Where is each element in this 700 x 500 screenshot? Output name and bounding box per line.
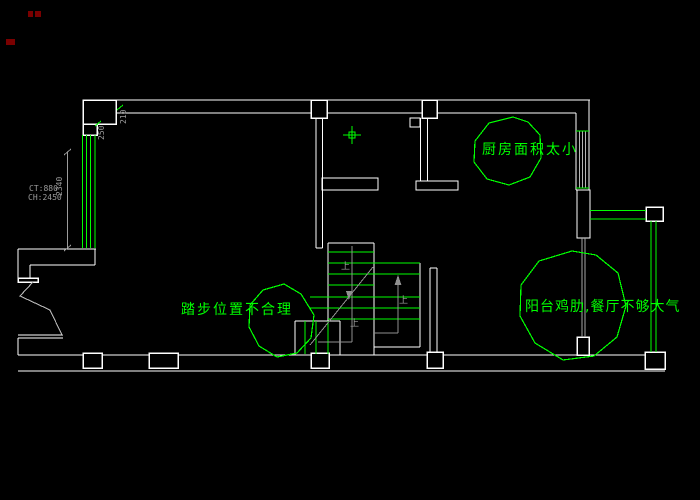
dining-note-label: 阳台鸡肋,餐厅不够大气 xyxy=(525,300,680,314)
left-dimension-line xyxy=(64,149,71,251)
kitchen-window xyxy=(576,131,589,188)
floor-plan-canvas[interactable]: 厨房面积太小 踏步位置不合理 阳台鸡肋,餐厅不够大气 CT:880 CH:245… xyxy=(0,0,700,500)
kitchen-note-label: 厨房面积太小 xyxy=(482,143,578,157)
dim-ct-label: CT:880 xyxy=(29,185,58,193)
stair-up-label: 上 xyxy=(341,263,350,272)
left-window xyxy=(83,135,96,248)
red-mark xyxy=(35,11,41,17)
balcony-railing xyxy=(590,211,656,353)
entry-door-swing xyxy=(20,282,62,335)
floor-plan-drawing xyxy=(0,0,700,500)
red-marks xyxy=(6,11,41,45)
red-mark xyxy=(6,39,15,45)
stair-direction-lines xyxy=(310,246,398,345)
stair-up-label: 上 xyxy=(399,297,408,306)
stair-up-label: 上 xyxy=(350,320,359,329)
red-mark xyxy=(28,11,33,17)
point-marker-icon xyxy=(343,126,361,144)
dim-corner-b-label: 210 xyxy=(120,110,128,124)
stairs-note-label: 踏步位置不合理 xyxy=(181,303,293,317)
outer-walls xyxy=(18,100,665,371)
dim-corner-a-label: 250 xyxy=(98,126,106,140)
wall-columns xyxy=(18,100,665,369)
dim-left-height-label: 2340 xyxy=(56,177,64,196)
